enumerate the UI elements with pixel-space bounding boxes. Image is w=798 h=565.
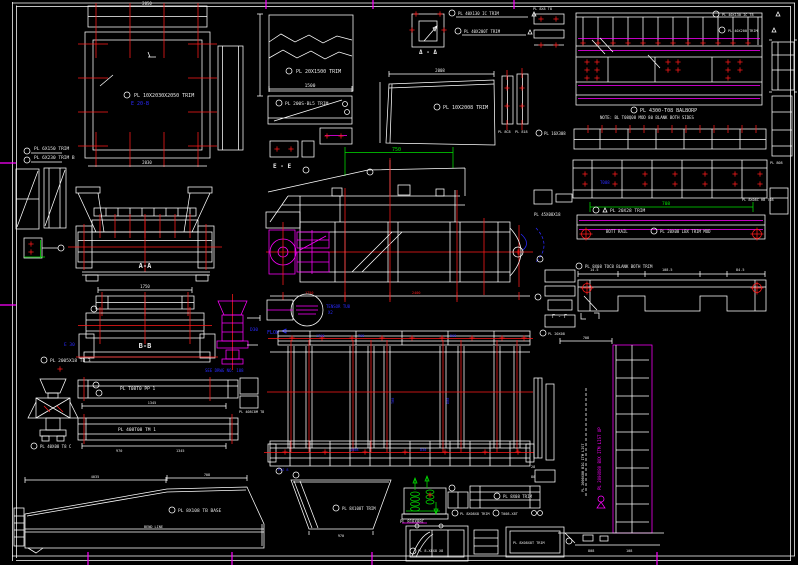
dim-label-green: 750 (392, 147, 401, 153)
view-band2: PL 16X308 (536, 125, 766, 149)
view-bottom-bars: PL T08T0 PP 1 PL 408C8M T8 1345 PL 408T0… (78, 377, 264, 453)
note: PL 408C8M T8 (239, 410, 264, 414)
dim: 108.5 (662, 268, 673, 272)
view-trapezoid-plate: PL 8X108 TB BASE BEND LINE 708 4035 (14, 473, 264, 553)
bar-callout: PL T08T0 PP 1 (120, 386, 156, 392)
label: BOTT RAIL (606, 229, 628, 234)
dim-label: 2030 (142, 160, 152, 165)
cad-canvas[interactable]: 2050 PL 10X2030X2050 TRIM E 20-B 2030 PL… (0, 0, 798, 565)
tag-blue: D08 (450, 334, 456, 338)
callout: PL 8-X8X8 X8 (418, 549, 443, 553)
view-small-square-part (769, 40, 797, 92)
tag-blue: POS 8 (278, 468, 289, 472)
view-notched-plate: PL 8X08 TOC8 BLANK BOTH TRIM 14.5 108.5 … (552, 263, 766, 320)
left-margin-strip (0, 0, 9, 565)
tiny-note: 28 (531, 465, 535, 469)
dim: 708 (583, 336, 589, 340)
vertical-note-white: PL 2000X80 BIG ITM LIST (581, 443, 585, 492)
cad-drawing: 2050 PL 10X2030X2050 TRIM E 20-B 2030 PL… (0, 0, 798, 565)
note: PL 40X130 IC TRIM (458, 11, 500, 16)
view-top-right-assembly: PL 4300-T08 BALBORP NOTE: BL T08Q08 MOD … (576, 11, 780, 120)
view-section-AA: A-A 1750 (68, 187, 222, 293)
view-band3: T008 (573, 160, 767, 198)
note: PL 40X200T TRIM (464, 29, 501, 34)
note-blue: SEE DRWG NO. 108 (205, 368, 244, 373)
tag-blue: 1008 (350, 448, 358, 452)
view-left-panels (16, 168, 66, 258)
note: PL 8X8 T8 (533, 7, 552, 11)
dim-label: 2050 (142, 1, 152, 6)
dim: 1345 (148, 401, 156, 405)
view-main-elevation: 1750 2400 TENSOR TU8 X2 FLOW (266, 158, 533, 336)
tiny-note: 80 (531, 475, 535, 479)
section-label-DD: Δ - Δ (419, 49, 437, 56)
tag-blue: T008 (600, 180, 610, 185)
callout: PL 8X108T TRIM (342, 506, 376, 511)
note: PL 16X308 (544, 131, 566, 136)
assembly-callout: PL 4300-T08 BALBORP (640, 108, 697, 114)
tag-blue: T08 (358, 334, 364, 338)
callout: PL 20X08 LBX TRIM MOD (660, 229, 711, 234)
callout: PL 20X28 TRIM (610, 208, 646, 214)
note: PL 818 (515, 130, 528, 134)
callout: PL 40X08 T8 C (40, 444, 72, 449)
dim: 970 (338, 534, 344, 538)
section-label-EE: E - E (273, 163, 291, 170)
bar-callout: PL 408T08 TM 1 (118, 427, 156, 433)
tag: D30 (250, 327, 258, 333)
view-sub-assembly: PL 200S-BL5 TRIM E - E (268, 96, 352, 170)
view-plan: 1708 T08 D08 T08 D08 POS 8 1008 D30 (264, 331, 534, 478)
view-top-small-parts: PL 8X8 T8 (533, 7, 564, 48)
tag-blue: TENSOR TU8 (326, 304, 351, 309)
dim: 14.5 (590, 268, 598, 272)
tag-blue: X2 (328, 310, 333, 315)
dim-label: 1750 (140, 284, 150, 289)
tag-blue: 1708 (316, 334, 324, 338)
view-vibrator-unit: D30 (217, 294, 260, 370)
view-mid-plate: PL 10X2008 TRIM 2008 (380, 68, 495, 145)
view-bottom-hopper: PL 8X108T TRIM 970 (291, 480, 391, 538)
view-section-BB: B-B E 30 PL 2005X18 TB 3 SEE DRWG NO. 10… (41, 292, 244, 373)
view-bottom-boxes: PL 8-X8X8 X8 PL 8X08X8T TRIM (402, 523, 572, 561)
note: PL 2005X18 TB 3 (50, 358, 91, 364)
tag-blue: D30 (420, 448, 426, 452)
assembly-note: NOTE: BL T08Q08 MOD 80 BLANK BOTH SIDES (600, 115, 695, 120)
view-square-plate: 2050 PL 10X2030X2050 TRIM E 20-B 2030 PL… (24, 1, 263, 167)
dim: 708 (204, 473, 210, 477)
note: PL 40X130 IC T8 (722, 13, 754, 17)
dim: 808 (588, 549, 594, 553)
plate-callout: PL 20X1500 TRIM (296, 69, 341, 75)
view-band4: 708 PL 20X28 TRIM PL 8X08C HB T08 BOTT R… (577, 198, 774, 241)
dim: 84.5 (736, 268, 744, 272)
dim-label: 1500 (305, 83, 316, 89)
view-right-edge-parts: PL 808 (770, 96, 792, 214)
view-mount-detail: PL 40X08 T8 C (28, 379, 78, 449)
tag-blue-vertical: D08 (446, 398, 450, 404)
dim-red: 2400 (412, 291, 420, 295)
view-detail-DD: Δ - Δ PL 40X130 IC TRIM PL 40X200T TRIM (409, 10, 536, 56)
note: PL 20X08 (548, 332, 565, 336)
note: PL 808 (770, 161, 783, 165)
plate-callout: PL 10X2008 TRIM (443, 105, 488, 111)
dim: 1345 (176, 449, 184, 453)
view-bottom-center-bar: PL 8X08 TRIM PL 8X08X8 TRIM T008-X8T (452, 486, 543, 516)
note: BEND LINE (144, 525, 163, 529)
note: T008-X8T (501, 512, 519, 516)
note: PL 6X230 TRIM B (34, 155, 75, 161)
view-break-plate: PL 20X1500 TRIM 1500 (269, 15, 353, 92)
dim-label: 2008 (435, 68, 445, 73)
note: PL 6X150 TRIM (34, 146, 70, 152)
dim-label-green: 708 (662, 201, 670, 207)
section-label-BB: B-B (139, 342, 152, 350)
plate-callout: PL 10X2030X2050 TRIM (134, 93, 194, 99)
vertical-note-magenta: PL 2000X80 BOX ITM LIST UP (597, 427, 602, 490)
note: PL 40X200 TRIM (728, 29, 758, 33)
note: PL 8X08C HB T08 (742, 198, 774, 202)
section-label-AA: A-A (139, 262, 152, 270)
dim: 970 (116, 449, 122, 453)
box-label: PL 8X08X8T TRIM (513, 541, 545, 545)
dim: 4035 (91, 475, 99, 479)
plate-tag: E 20-B (131, 101, 149, 107)
dim: 108 (626, 549, 632, 553)
note: PL 45X08X18 (534, 212, 561, 217)
callout: PL 200S-BL5 TRIM (285, 101, 329, 107)
plate-callout: PL 8X108 TB BASE (178, 508, 222, 514)
tag: E 30 (64, 342, 75, 348)
note: PL 8C8 (498, 130, 511, 134)
view-bottom-right-plate: 708 PL 2000X80 BIG ITM LIST PL 2000X80 B… (531, 336, 664, 553)
tag-blue-vertical: T08 (391, 398, 395, 404)
callout: PL 8X08 TRIM (503, 494, 532, 499)
view-side-bars: PL 8C8 PL 818 (498, 68, 528, 134)
note: PL 8X08X8 TRIM (460, 512, 490, 516)
view-green-isolator: PL 818X08C (400, 476, 468, 524)
